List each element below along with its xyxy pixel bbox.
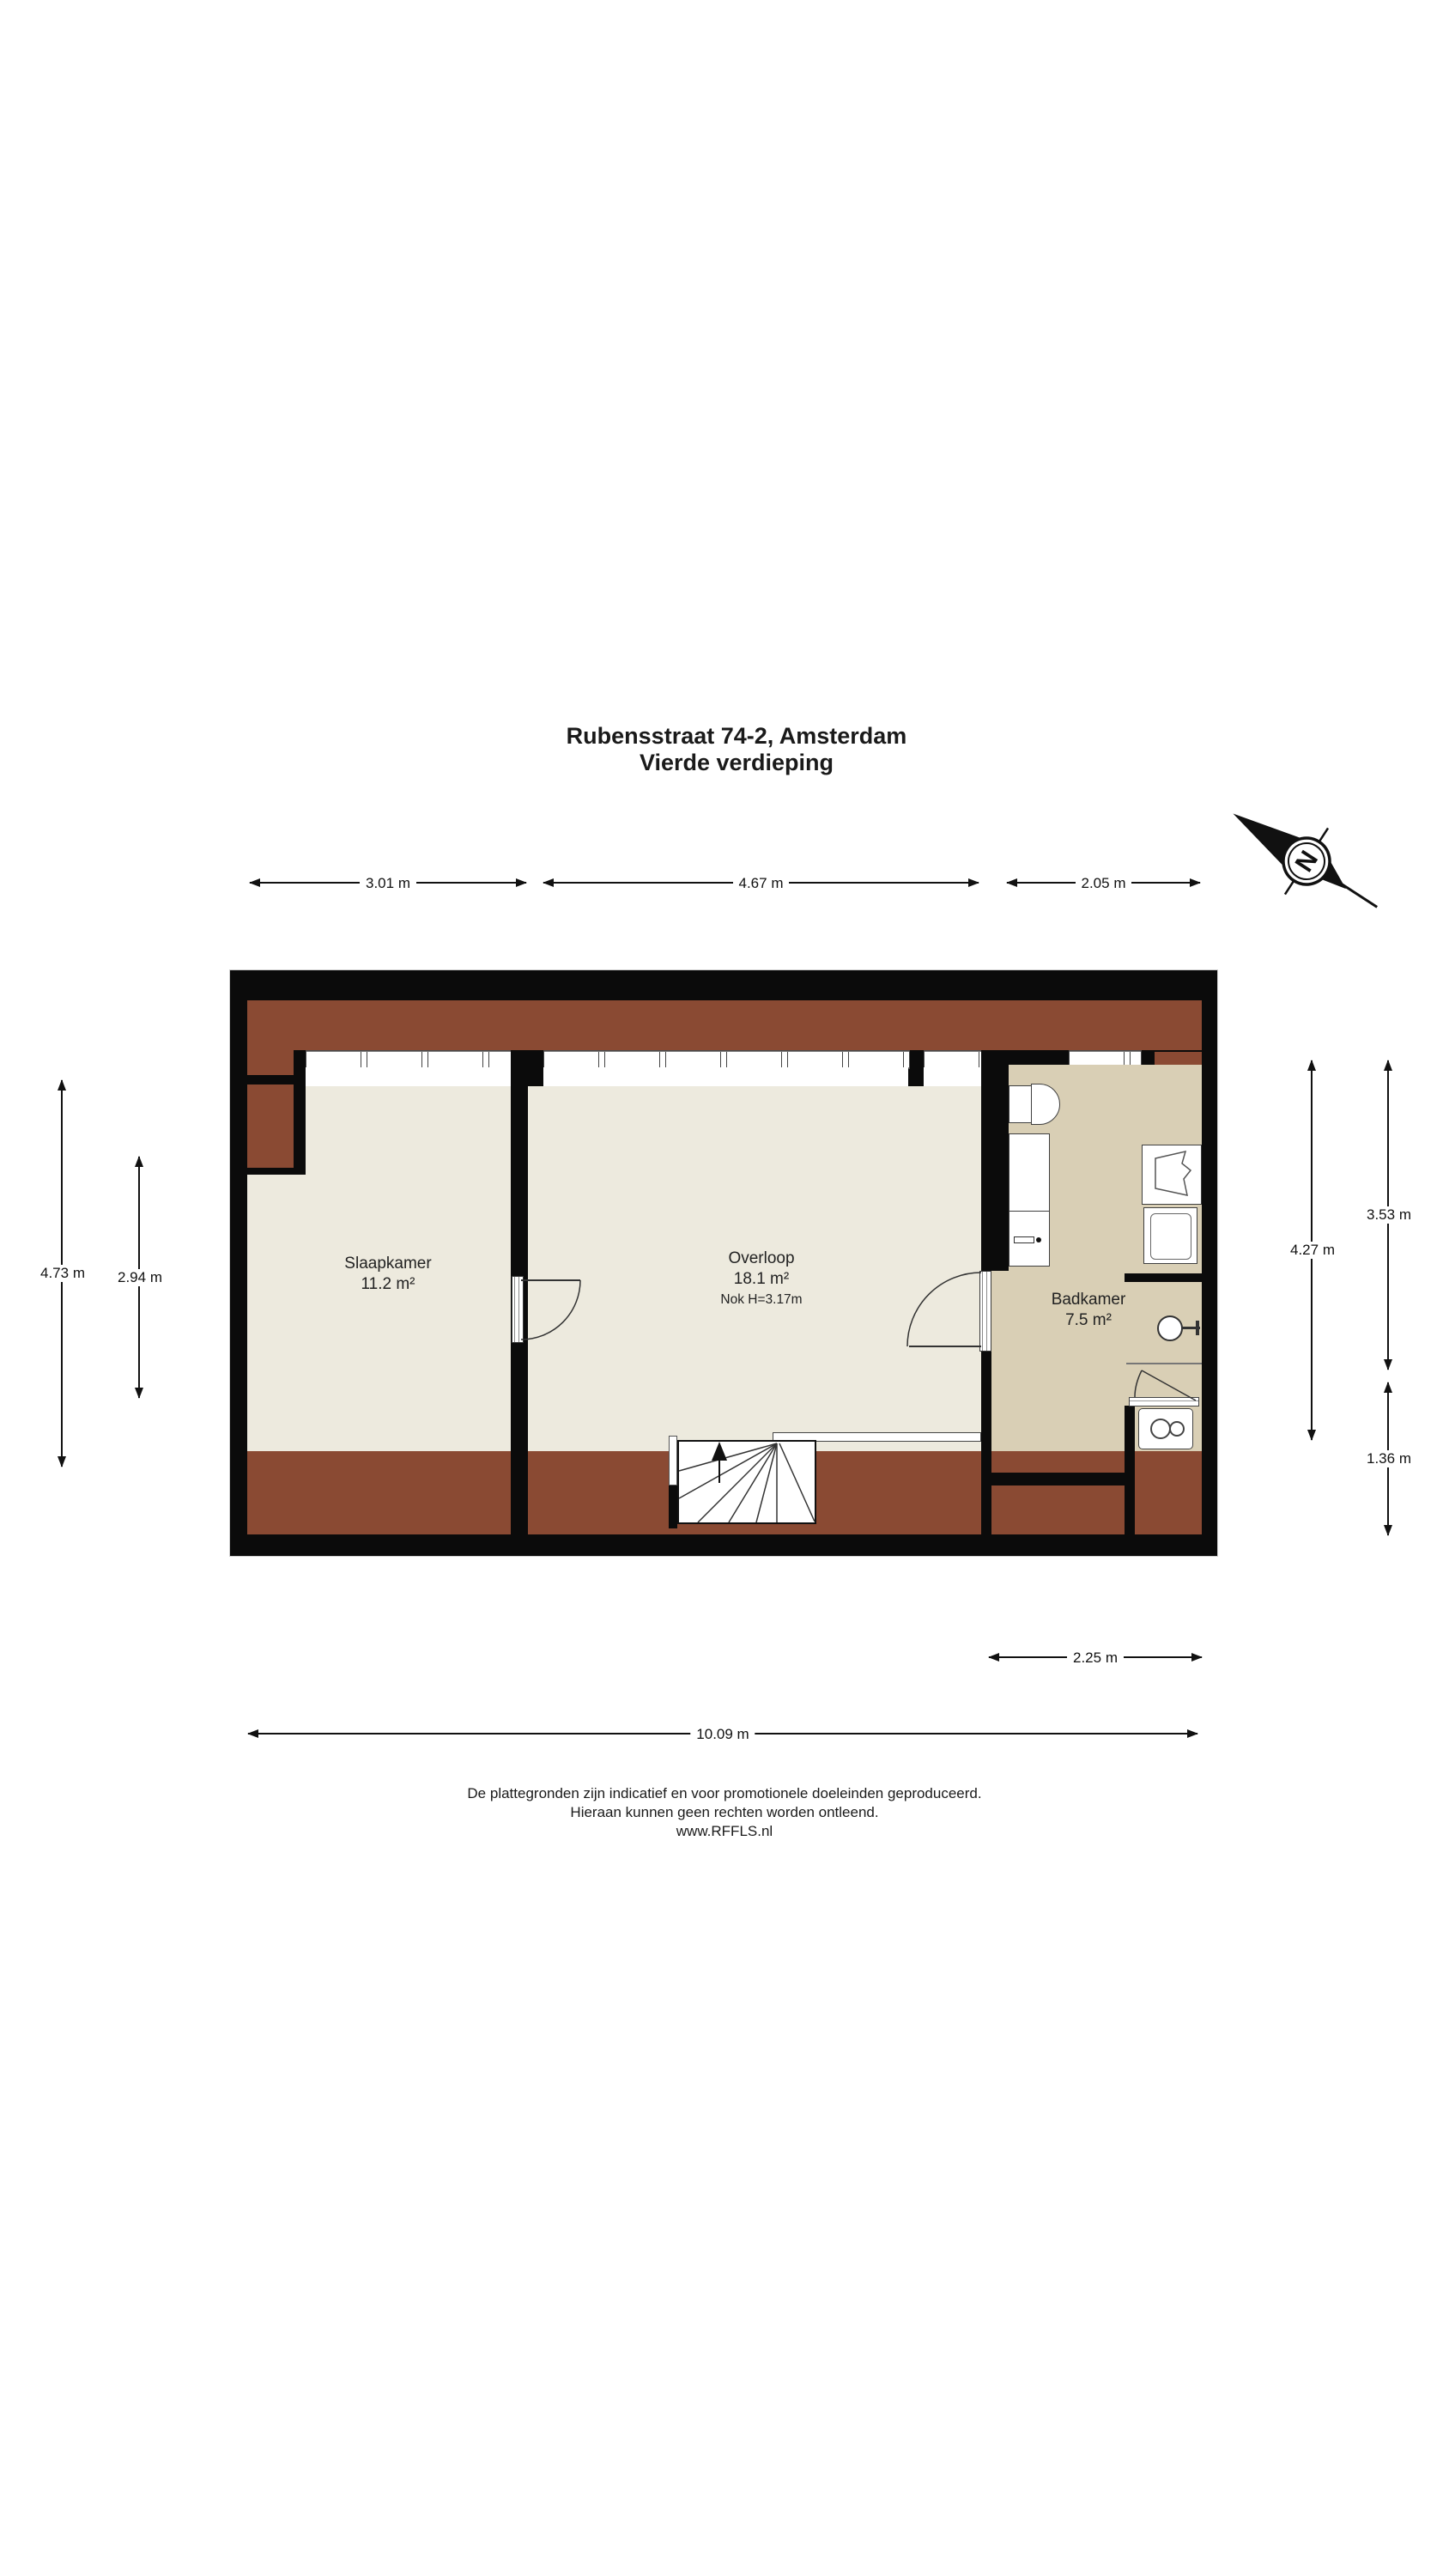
dimension-label: 4.27 m <box>1284 1242 1341 1259</box>
washing-machine <box>1138 1408 1193 1449</box>
shower-head-icon <box>1157 1315 1183 1341</box>
disclaimer-line2: Hieraan kunnen geen rechten worden ontle… <box>467 1803 981 1822</box>
window-ledge-landing <box>543 1067 908 1087</box>
dimension-top-bedroom: 3.01 m <box>250 882 526 884</box>
roof-slope-top <box>247 1000 1202 1050</box>
dimension-label: 2.94 m <box>112 1269 168 1286</box>
disclaimer-website: www.RFFLS.nl <box>467 1822 981 1841</box>
dimension-label: 3.01 m <box>360 875 416 892</box>
dimension-right-lower: 1.36 m <box>1387 1382 1389 1535</box>
room-area: 11.2 m² <box>344 1274 431 1295</box>
wall-landing-bathroom <box>981 1050 1009 1271</box>
window-landing <box>543 1050 910 1069</box>
roof-slope-left-upper <box>247 1050 294 1075</box>
stair-side-wall <box>669 1485 677 1528</box>
dimension-label: 10.09 m <box>690 1726 755 1743</box>
dimension-bottom-bathroom: 2.25 m <box>989 1656 1202 1658</box>
window-bedroom <box>306 1050 524 1069</box>
dimension-bottom-total: 10.09 m <box>248 1733 1197 1735</box>
shower-screen-line <box>1126 1363 1202 1364</box>
room-name: Badkamer <box>1052 1290 1126 1310</box>
dimension-label: 2.25 m <box>1067 1649 1124 1667</box>
window-landing-small <box>924 1050 983 1069</box>
disclaimer: De plattegronden zijn indicatief en voor… <box>467 1784 981 1841</box>
dimension-left-total: 4.73 m <box>61 1080 63 1467</box>
faucet-icon <box>1014 1236 1034 1243</box>
room-area: 18.1 m² <box>720 1269 802 1290</box>
shower-nook-door-track <box>1129 1397 1199 1406</box>
room-name: Overloop <box>720 1249 802 1269</box>
dimension-label: 4.67 m <box>733 875 790 892</box>
room-label-bedroom: Slaapkamer 11.2 m² <box>344 1254 431 1295</box>
dimension-label: 3.53 m <box>1361 1206 1417 1224</box>
dimension-right-total: 4.27 m <box>1311 1060 1313 1440</box>
room-area: 7.5 m² <box>1052 1310 1126 1331</box>
drain-icon <box>1036 1237 1041 1242</box>
bathroom-counter <box>1009 1133 1050 1212</box>
wall-shower-nook-top <box>1125 1273 1202 1282</box>
wall-bedroom-left <box>294 1050 306 1173</box>
room-ridge-height: Nok H=3.17m <box>720 1290 802 1310</box>
compass-north-label: N <box>1290 846 1324 877</box>
dimension-label: 1.36 m <box>1361 1450 1417 1467</box>
shower-wall-mount <box>1196 1321 1199 1335</box>
window-ledge-bedroom <box>306 1067 522 1087</box>
wall-shower-nook-left <box>1125 1406 1135 1534</box>
disclaimer-line1: De plattegronden zijn indicatief en voor… <box>467 1784 981 1803</box>
door-bedroom <box>512 1276 524 1343</box>
washbasin <box>1142 1145 1202 1205</box>
compass-north-icon: N <box>1211 781 1398 940</box>
wall-bathroom-lower <box>981 1352 991 1534</box>
dimension-top-bathroom: 2.05 m <box>1007 882 1200 884</box>
dimension-label: 2.05 m <box>1076 875 1132 892</box>
dimension-left-bedroom: 2.94 m <box>138 1157 140 1398</box>
boiler-inner <box>1150 1213 1191 1260</box>
page-title: Rubensstraat 74-2, Amsterdam Vierde verd… <box>567 723 907 776</box>
stair-side-strip <box>669 1436 677 1485</box>
room-label-bathroom: Badkamer 7.5 m² <box>1052 1290 1126 1331</box>
toilet-cistern <box>1009 1085 1033 1123</box>
title-floor: Vierde verdieping <box>567 750 907 776</box>
room-label-landing: Overloop 18.1 m² Nok H=3.17m <box>720 1249 802 1310</box>
title-address: Rubensstraat 74-2, Amsterdam <box>567 723 907 750</box>
door-bathroom <box>979 1271 991 1352</box>
staircase <box>677 1440 816 1524</box>
wall-bathroom-knee <box>991 1473 1126 1485</box>
room-name: Slaapkamer <box>344 1254 431 1274</box>
window-ledge-landing-small <box>924 1067 981 1087</box>
dimension-top-landing: 4.67 m <box>543 882 979 884</box>
dimension-right-bathroom: 3.53 m <box>1387 1060 1389 1370</box>
dimension-label: 4.73 m <box>34 1265 91 1282</box>
roof-slope-left-lower <box>247 1084 294 1168</box>
floorplan-page: Rubensstraat 74-2, Amsterdam Vierde verd… <box>0 0 1449 2576</box>
